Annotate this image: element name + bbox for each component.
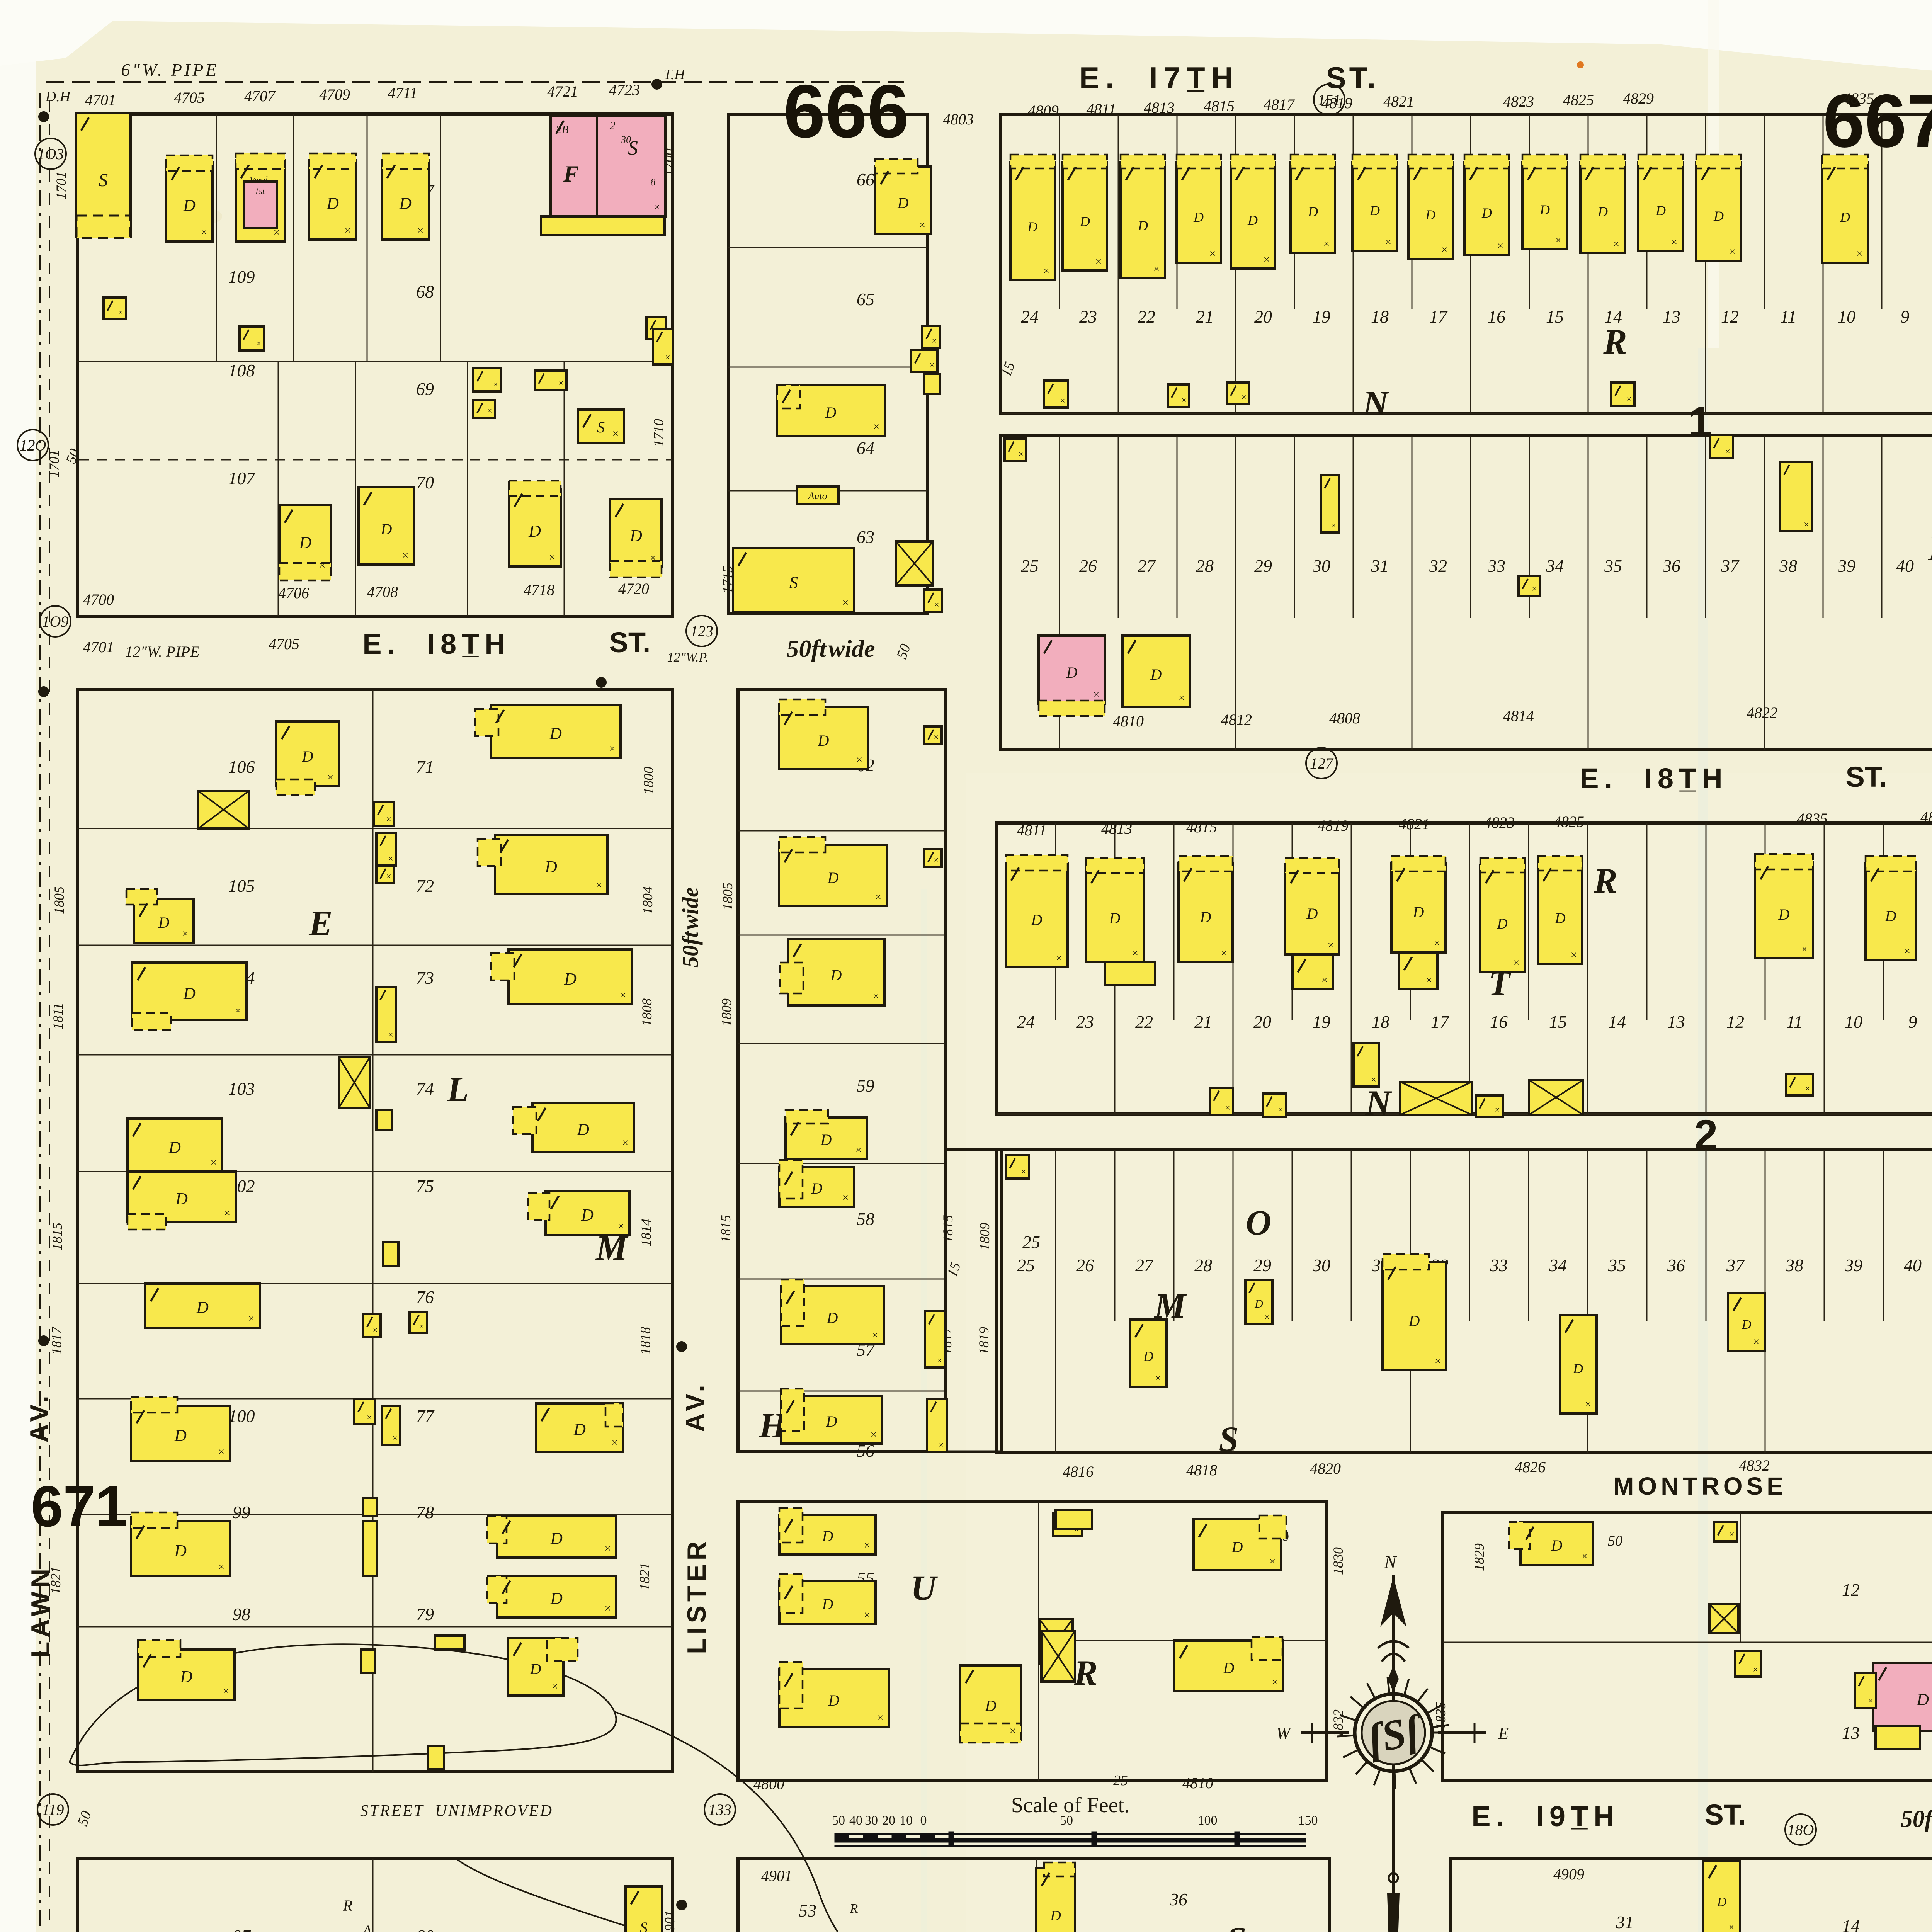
svg-text:×: × [211,1156,217,1169]
svg-text:1808: 1808 [639,998,655,1026]
svg-text:×: × [654,201,660,214]
svg-text:30: 30 [621,134,631,145]
svg-text:1819: 1819 [976,1327,992,1355]
svg-text:20: 20 [1253,1012,1271,1032]
svg-text:10: 10 [1838,307,1855,327]
svg-text:×: × [665,353,670,363]
svg-text:×: × [327,771,334,784]
svg-text:×: × [1868,1696,1873,1706]
svg-text:22: 22 [1138,307,1155,327]
svg-text:39: 39 [1837,556,1855,576]
svg-text:D: D [811,1180,823,1197]
svg-text:25: 25 [1022,1232,1040,1252]
svg-text:53: 53 [799,1901,816,1920]
svg-text:ST.: ST. [1846,761,1887,793]
svg-text:×: × [487,406,492,416]
svg-text:1817: 1817 [49,1326,64,1355]
svg-text:×: × [1153,263,1160,276]
svg-text:×: × [1264,1313,1270,1323]
svg-text:24: 24 [1017,1012,1035,1032]
svg-text:D: D [629,526,642,545]
svg-text:×: × [493,380,498,390]
svg-text:35: 35 [1604,556,1622,576]
svg-text:D: D [581,1206,594,1225]
svg-text:4723: 4723 [609,81,640,99]
svg-text:×: × [1434,937,1440,950]
svg-text:×: × [1753,1335,1760,1348]
svg-text:4825: 4825 [1553,813,1584,830]
svg-text:×: × [596,879,602,891]
svg-text:×: × [1221,947,1228,959]
svg-text:D: D [326,194,339,213]
svg-text:50: 50 [1060,1813,1073,1828]
svg-text:×: × [877,1711,884,1724]
svg-text:E. I8T̲H: E. I8T̲H [362,628,510,660]
svg-text:×: × [871,1428,877,1441]
svg-text:D: D [1143,1349,1153,1364]
svg-text:4800: 4800 [753,1775,784,1793]
svg-text:50: 50 [832,1813,845,1828]
svg-text:D: D [828,1692,840,1709]
svg-text:×: × [1043,265,1050,277]
svg-text:30: 30 [1312,556,1330,576]
svg-text:×: × [934,855,939,865]
svg-text:107: 107 [228,468,256,488]
svg-text:E: E [1498,1724,1509,1743]
svg-text:×: × [558,378,564,388]
svg-text:18O: 18O [1787,1821,1814,1838]
svg-text:×: × [417,224,424,237]
svg-text:29: 29 [1253,1255,1271,1275]
svg-text:D: D [825,404,837,421]
svg-text:72: 72 [416,876,434,896]
svg-text:63: 63 [857,527,874,547]
svg-text:×: × [1753,1665,1758,1675]
svg-text:39: 39 [1844,1255,1862,1275]
svg-text:4815: 4815 [1204,97,1235,115]
svg-text:×: × [1513,956,1520,969]
svg-text:17: 17 [1431,1012,1449,1032]
svg-text:D: D [168,1138,181,1157]
svg-text:×: × [622,1136,629,1149]
svg-text:13: 13 [1667,1012,1685,1032]
svg-text:4708: 4708 [367,583,398,600]
svg-text:4803: 4803 [943,111,974,128]
svg-text:12"W.P.: 12"W.P. [667,650,709,665]
svg-text:×: × [402,549,409,562]
svg-text:×: × [1626,394,1632,404]
svg-text:71: 71 [416,757,434,777]
svg-text:30: 30 [1312,1255,1330,1275]
svg-text:50ft wide: 50ft wide [678,887,703,968]
svg-text:8: 8 [651,177,656,188]
svg-text:R: R [1603,322,1627,361]
svg-text:D: D [822,1527,833,1545]
svg-text:21: 21 [1194,1012,1212,1032]
svg-text:14: 14 [1608,1012,1626,1032]
svg-text:×: × [118,308,123,318]
svg-text:40: 40 [1904,1255,1922,1275]
svg-text:×: × [1278,1105,1283,1115]
svg-text:4837: 4837 [1920,808,1932,826]
svg-text:22: 22 [1135,1012,1153,1032]
svg-text:D: D [299,533,311,552]
svg-text:S: S [99,170,108,190]
svg-text:25: 25 [1021,556,1039,576]
svg-text:×: × [345,224,351,237]
svg-text:D: D [1138,218,1148,233]
svg-text:MONTROSE: MONTROSE [1613,1472,1787,1500]
svg-text:4813: 4813 [1144,99,1175,116]
svg-text:26: 26 [1079,556,1097,576]
svg-text:D: D [1231,1538,1243,1556]
svg-text:L: L [447,1070,469,1109]
svg-text:31: 31 [1616,1912,1634,1932]
svg-text:671: 671 [31,1474,128,1539]
svg-text:×: × [873,420,880,433]
svg-text:1O3: 1O3 [37,145,64,163]
svg-text:×: × [549,551,556,564]
svg-text:E. I9T̲H: E. I9T̲H [1471,1800,1619,1832]
svg-text:×: × [1323,238,1330,250]
svg-text:D: D [1223,1659,1235,1677]
svg-text:1st: 1st [255,186,265,196]
svg-text:4823: 4823 [1503,93,1534,110]
svg-text:4701: 4701 [83,638,114,656]
svg-text:19: 19 [1313,307,1330,327]
svg-text:D: D [1539,202,1550,218]
svg-text:4700: 4700 [83,591,114,608]
svg-text:×: × [937,1356,942,1366]
svg-text:D: D [564,969,577,988]
svg-text:×: × [1804,520,1809,530]
svg-text:×: × [386,815,391,825]
svg-text:1O9: 1O9 [42,613,69,630]
svg-text:4814: 4814 [1503,707,1534,724]
svg-text:4811: 4811 [1086,100,1116,118]
svg-text:D: D [1306,905,1318,922]
svg-text:108: 108 [228,361,255,380]
svg-text:2: 2 [610,119,616,132]
svg-text:D: D [830,966,842,984]
svg-text:×: × [1010,1725,1016,1737]
svg-text:64: 64 [857,438,874,458]
svg-text:9: 9 [1908,1012,1917,1032]
svg-text:×: × [1018,449,1024,459]
svg-text:4832: 4832 [1739,1457,1770,1474]
svg-text:103: 103 [228,1079,255,1099]
svg-text:S: S [789,573,798,592]
svg-text:75: 75 [416,1176,434,1196]
svg-text:D: D [577,1120,589,1139]
svg-text:4822: 4822 [1747,704,1777,721]
svg-text:D: D [1109,910,1121,927]
svg-text:4835: 4835 [1843,90,1874,107]
svg-text:D: D [1247,213,1258,228]
svg-text:×: × [612,1436,618,1449]
svg-text:109: 109 [228,267,255,287]
svg-text:Auto: Auto [807,490,827,502]
svg-text:D: D [302,748,313,765]
svg-text:×: × [367,1413,372,1423]
svg-text:W: W [1276,1724,1292,1743]
svg-text:50ft wide: 50ft wide [1901,1806,1932,1832]
svg-text:1701: 1701 [46,450,62,478]
svg-text:×: × [1582,1550,1588,1563]
svg-text:38: 38 [1785,1255,1803,1275]
svg-text:1809: 1809 [977,1223,992,1250]
svg-text:40: 40 [1896,556,1914,576]
svg-text:AV.: AV. [25,1392,54,1443]
svg-text:D: D [1150,666,1162,683]
svg-text:79: 79 [416,1604,434,1624]
svg-text:4701: 4701 [85,91,116,109]
svg-text:1811: 1811 [50,1003,66,1029]
svg-text:1815: 1815 [718,1215,733,1243]
svg-text:×: × [248,1312,255,1325]
svg-text:S: S [1219,1419,1238,1459]
svg-text:S: S [1226,1920,1246,1932]
svg-text:25: 25 [1113,1772,1128,1789]
svg-text:4901: 4901 [761,1867,792,1884]
svg-text:1805: 1805 [51,886,67,914]
svg-text:14: 14 [1604,307,1622,327]
svg-text:4721: 4721 [547,83,578,100]
svg-text:74: 74 [416,1079,434,1099]
svg-text:×: × [1532,584,1537,594]
svg-text:U: U [911,1568,938,1607]
svg-text:4825: 4825 [1563,91,1594,109]
svg-text:2B: 2B [556,123,568,136]
svg-text:R: R [1593,861,1617,900]
svg-text:×: × [842,596,849,609]
svg-text:×: × [1056,952,1063,964]
svg-text:4811: 4811 [1017,821,1046,839]
svg-text:12"W. PIPE: 12"W. PIPE [125,643,199,660]
svg-text:R: R [343,1897,352,1914]
svg-text:×: × [864,1609,871,1621]
svg-text:×: × [1441,243,1448,256]
svg-text:10: 10 [1845,1012,1862,1032]
svg-text:N: N [1384,1552,1397,1572]
svg-text:S T R E E T U N I M P R O V: S T R E E T U N I M P R O V E D [360,1802,552,1820]
svg-text:18: 18 [1372,1012,1389,1032]
svg-text:73: 73 [416,968,434,988]
svg-text:D: D [1254,1298,1263,1310]
svg-text:D: D [1413,903,1424,921]
svg-text:150: 150 [1298,1813,1318,1828]
svg-text:0: 0 [920,1813,927,1828]
svg-text:30: 30 [865,1813,878,1828]
svg-text:T.H: T.H [663,66,686,83]
svg-text:119: 119 [42,1801,64,1818]
svg-text:×: × [319,559,326,572]
svg-text:4818: 4818 [1186,1461,1217,1479]
svg-text:R: R [1073,1653,1097,1692]
svg-text:×: × [372,1325,378,1335]
svg-text:4821: 4821 [1399,815,1430,833]
svg-text:18: 18 [1371,307,1389,327]
svg-text:105: 105 [228,876,255,896]
svg-text:50ft wide: 50ft wide [786,635,875,662]
svg-text:×: × [650,551,656,564]
svg-text:D: D [544,857,557,876]
svg-text:4826: 4826 [1515,1458,1546,1476]
svg-text:32: 32 [1429,556,1447,576]
svg-text:1901: 1901 [662,1910,677,1932]
svg-text:E. I7T̲H: E. I7T̲H [1079,61,1239,95]
svg-text:80: 80 [416,1926,434,1932]
svg-text:15: 15 [1549,1012,1567,1032]
svg-text:4810: 4810 [1113,713,1144,730]
svg-text:4819: 4819 [1318,817,1349,834]
svg-text:70: 70 [416,473,434,492]
svg-text:S: S [640,1919,648,1932]
svg-text:D: D [399,194,412,213]
svg-text:1815: 1815 [940,1215,956,1243]
svg-text:×: × [1385,236,1392,248]
svg-text:D: D [985,1697,997,1714]
svg-text:×: × [218,1561,225,1573]
svg-text:23: 23 [1076,1012,1094,1032]
svg-text:D: D [1742,1318,1752,1332]
svg-text:1809: 1809 [719,998,734,1026]
svg-text:13: 13 [1663,307,1680,327]
svg-text:667: 667 [1823,79,1932,163]
svg-text:D: D [175,1189,188,1208]
svg-text:31: 31 [1371,556,1389,576]
svg-text:D: D [1408,1312,1420,1330]
svg-text:×: × [1426,974,1432,986]
svg-text:E. I8T̲H: E. I8T̲H [1580,762,1728,794]
svg-text:×: × [856,753,863,766]
svg-text:×: × [1241,393,1247,403]
svg-text:17: 17 [1429,307,1448,327]
svg-text:100: 100 [228,1406,255,1426]
svg-text:E: E [1927,529,1932,568]
svg-text:34: 34 [1549,1255,1567,1275]
svg-text:35: 35 [1608,1255,1626,1275]
svg-text:×: × [934,733,939,743]
svg-text:×: × [609,742,616,755]
svg-text:4709: 4709 [319,86,350,103]
svg-text:1701: 1701 [53,172,69,199]
svg-text:36: 36 [1169,1889,1187,1909]
svg-text:12O: 12O [20,437,46,454]
svg-text:D: D [158,914,170,931]
svg-text:27: 27 [1138,556,1156,576]
svg-text:1830: 1830 [1330,1547,1346,1575]
svg-text:F: F [563,161,579,187]
svg-text:×: × [256,339,262,349]
svg-text:59: 59 [857,1076,874,1095]
svg-text:29: 29 [1254,556,1272,576]
svg-text:12: 12 [1721,307,1739,327]
svg-text:D: D [1551,1537,1563,1554]
svg-text:×: × [182,927,189,940]
svg-text:×: × [605,1542,611,1555]
svg-text:A: A [361,1922,372,1932]
svg-text:×: × [388,1030,393,1040]
svg-text:12: 12 [1726,1012,1744,1032]
svg-text:D: D [897,194,909,212]
svg-text:N: N [1362,384,1390,423]
svg-text:24: 24 [1021,307,1039,327]
svg-text:21: 21 [1196,307,1214,327]
svg-text:19: 19 [1313,1012,1330,1032]
svg-text:13: 13 [1842,1723,1860,1743]
svg-text:×: × [552,1680,558,1693]
svg-text:36: 36 [1662,556,1680,576]
svg-text:×: × [386,872,391,882]
svg-text:D: D [550,1589,563,1608]
svg-text:×: × [1371,1075,1376,1085]
svg-text:D: D [381,520,392,538]
svg-text:D: D [528,522,541,541]
svg-text:D: D [1027,219,1037,235]
svg-text:×: × [1857,247,1863,260]
svg-text:76: 76 [416,1287,434,1307]
svg-text:666: 666 [783,69,909,153]
svg-text:97: 97 [233,1926,251,1932]
svg-text:11: 11 [1786,1012,1803,1032]
svg-text:1804: 1804 [640,886,655,914]
svg-text:1829: 1829 [1471,1543,1487,1571]
svg-text:×: × [1209,247,1216,260]
svg-text:10: 10 [900,1813,913,1828]
svg-text:98: 98 [233,1604,250,1624]
svg-text:×: × [1571,949,1577,961]
svg-text:4817: 4817 [1264,96,1295,113]
svg-text:4706: 4706 [278,584,309,602]
svg-text:×: × [218,1446,225,1458]
svg-text:D: D [1369,203,1380,218]
svg-text:×: × [1269,1555,1276,1568]
svg-text:×: × [223,1685,230,1697]
svg-text:×: × [419,1321,424,1332]
svg-text:D: D [1080,214,1090,229]
svg-text:D.H: D.H [45,88,71,105]
svg-text:×: × [1060,396,1065,406]
svg-text:×: × [224,1207,231,1219]
svg-text:D: D [174,1541,187,1560]
svg-text:27: 27 [1135,1255,1154,1275]
svg-text:151: 151 [1318,91,1341,109]
svg-text:66: 66 [857,170,874,189]
svg-text:R: R [850,1901,858,1916]
svg-text:77: 77 [416,1406,435,1426]
svg-text:D: D [174,1426,187,1445]
svg-text:D: D [1597,204,1608,219]
svg-text:1821: 1821 [637,1563,652,1590]
svg-text:1710: 1710 [651,419,666,447]
svg-text:D: D [549,724,562,743]
svg-text:78: 78 [416,1502,434,1522]
svg-text:×: × [1729,1530,1735,1540]
svg-text:4813: 4813 [1101,820,1132,837]
svg-text:D: D [1031,911,1043,929]
svg-text:1814: 1814 [638,1219,654,1247]
svg-text:4720: 4720 [618,580,649,597]
svg-text:D: D [1497,916,1507,932]
svg-text:ST.: ST. [609,626,651,658]
svg-text:×: × [1728,1921,1735,1932]
svg-text:1800: 1800 [641,767,656,794]
svg-text:D: D [573,1420,586,1439]
svg-text:D: D [827,869,839,886]
svg-text:D: D [818,732,829,749]
svg-text:×: × [1328,939,1334,952]
